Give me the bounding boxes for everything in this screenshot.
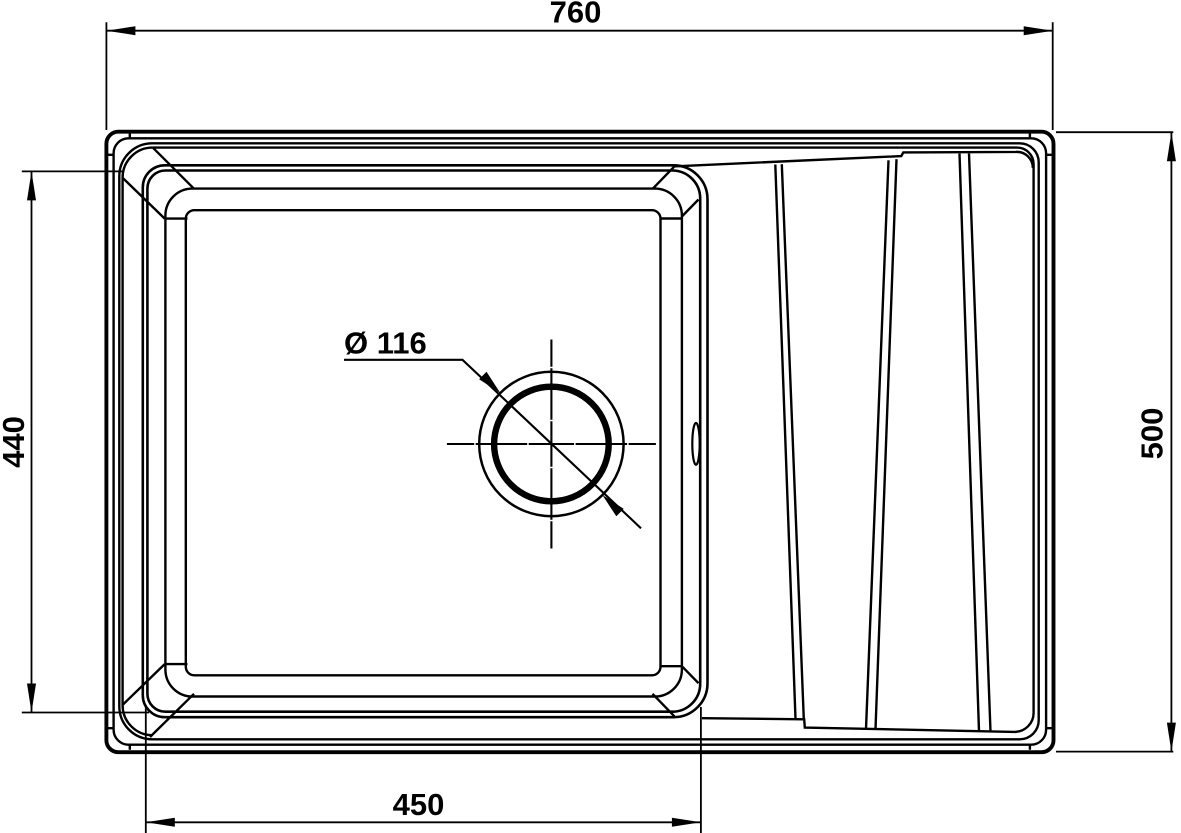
svg-text:Ø 116: Ø 116 xyxy=(344,326,427,361)
svg-text:500: 500 xyxy=(1135,408,1170,460)
svg-text:450: 450 xyxy=(393,787,445,822)
svg-text:440: 440 xyxy=(0,416,31,468)
svg-text:760: 760 xyxy=(550,0,602,30)
